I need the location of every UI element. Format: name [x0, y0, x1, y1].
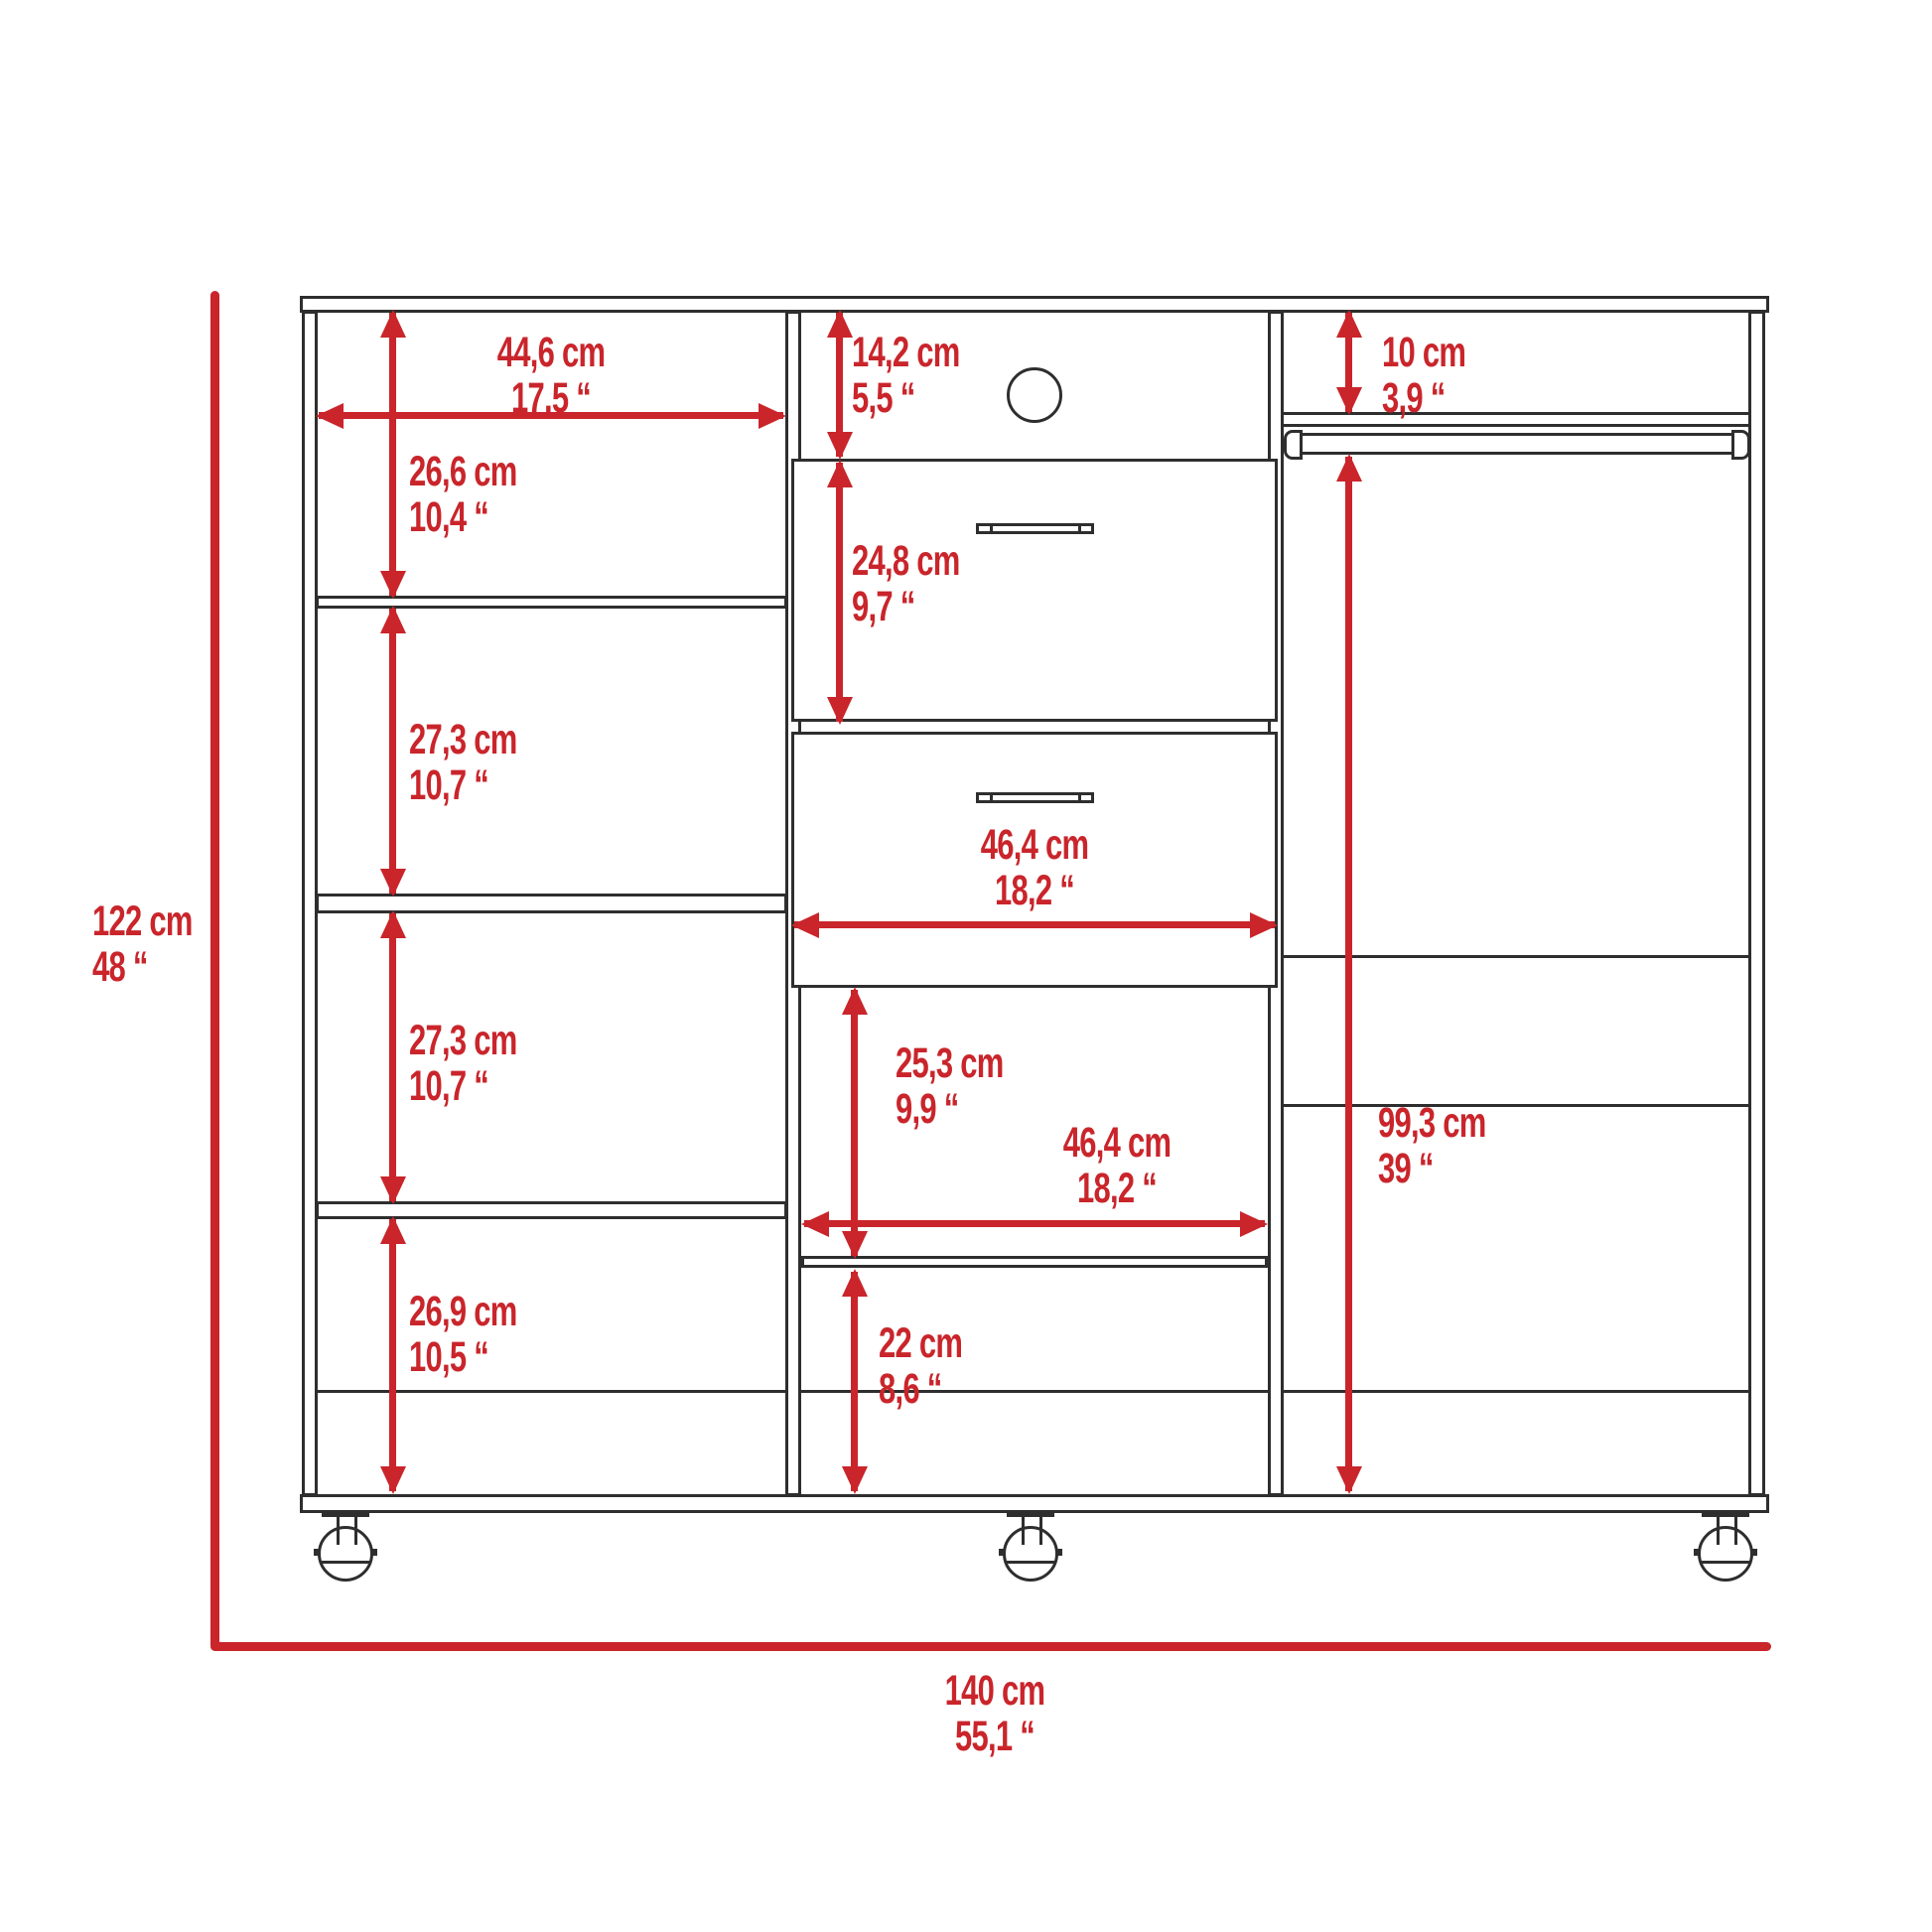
- dim-arrow-left-shelf-1: [389, 313, 396, 596]
- dim-label-total-width: 140 cm 55,1 “: [888, 1668, 1102, 1759]
- drawer-2-handle-tick-left: [990, 792, 993, 803]
- dim-label-rod-clearance: 10 cm 3,9 “: [1382, 330, 1465, 421]
- drawer-1-handle-tick-left: [990, 523, 993, 534]
- dim-arrow-bottom-cubby: [851, 1272, 858, 1491]
- dim-arrow-middle-open-height: [851, 990, 858, 1256]
- drawer-2-handle-tick-right: [1078, 792, 1081, 803]
- caster-right-seam: [1700, 1561, 1751, 1564]
- dim-arrow-rod-clearance: [1345, 313, 1352, 412]
- caster-left-axle-a: [314, 1549, 321, 1556]
- top-board: [300, 296, 1769, 313]
- caster-middle-axle-a: [999, 1549, 1006, 1556]
- dim-label-drawer-height: 24,8 cm 9,7 “: [852, 538, 960, 629]
- dim-label-left-shelf-3: 27,3 cm 10,7 “: [409, 1018, 517, 1109]
- overall-height-line: [210, 291, 219, 1649]
- dim-arrow-left-shelf-3: [389, 913, 396, 1201]
- dim-arrow-left-shelf-2: [389, 609, 396, 894]
- dim-label-top-cubby: 14,2 cm 5,5 “: [852, 330, 960, 421]
- caster-left-seam: [320, 1561, 371, 1564]
- overall-width-line: [210, 1642, 1771, 1651]
- caster-right-wheel: [1698, 1526, 1753, 1582]
- dim-label-left-shelf-1: 26,6 cm 10,4 “: [409, 449, 517, 540]
- caster-right-axle-b: [1750, 1549, 1757, 1556]
- dim-arrow-left-shelf-4: [389, 1219, 396, 1491]
- dim-arrow-drawer-width: [794, 921, 1275, 928]
- caster-left-plate: [322, 1511, 369, 1517]
- furniture-dimension-diagram: 44,6 cm 17,5 “ 26,6 cm 10,4 “ 27,3 cm 10…: [0, 0, 1932, 1932]
- caster-middle-axle-b: [1055, 1549, 1062, 1556]
- right-column-line-2: [1284, 1104, 1748, 1107]
- cable-hole: [1007, 367, 1062, 423]
- dim-arrow-hanging-height: [1345, 457, 1352, 1491]
- dim-label-left-shelf-2: 27,3 cm 10,7 “: [409, 717, 517, 808]
- dim-label-middle-open-width: 46,4 cm 18,2 “: [1010, 1120, 1224, 1211]
- right-column-line-1: [1284, 955, 1748, 958]
- rod-bracket-right: [1731, 430, 1750, 460]
- hanging-rod: [1291, 433, 1743, 455]
- dim-label-total-height: 122 cm 48 “: [92, 898, 193, 990]
- caster-middle-wheel: [1003, 1526, 1058, 1582]
- rod-bracket-left: [1284, 430, 1303, 460]
- dim-label-middle-open-height: 25,3 cm 9,9 “: [896, 1040, 1004, 1132]
- caster-middle-seam: [1005, 1561, 1056, 1564]
- drawer-1-handle: [976, 523, 1094, 534]
- caster-left-wheel: [318, 1526, 373, 1582]
- caster-right-plate: [1702, 1511, 1749, 1517]
- caster-right-axle-a: [1694, 1549, 1701, 1556]
- dim-label-left-column-width: 44,6 cm 17,5 “: [444, 330, 658, 421]
- middle-shelf: [801, 1256, 1268, 1268]
- base-line: [318, 1390, 1748, 1393]
- dim-arrow-top-cubby: [836, 313, 843, 457]
- dim-label-hanging-height: 99,3 cm 39 “: [1378, 1100, 1486, 1191]
- dim-label-drawer-width: 46,4 cm 18,2 “: [927, 822, 1142, 913]
- caster-middle-plate: [1007, 1511, 1054, 1517]
- dim-label-bottom-cubby: 22 cm 8,6 “: [879, 1320, 962, 1412]
- caster-left-axle-b: [370, 1549, 377, 1556]
- dim-arrow-drawer-height: [836, 463, 843, 722]
- dim-label-left-shelf-4: 26,9 cm 10,5 “: [409, 1289, 517, 1380]
- drawer-1-handle-tick-right: [1078, 523, 1081, 534]
- dim-arrow-middle-open-width: [804, 1220, 1265, 1227]
- right-side-panel: [1748, 311, 1765, 1496]
- drawer-2-handle: [976, 792, 1094, 803]
